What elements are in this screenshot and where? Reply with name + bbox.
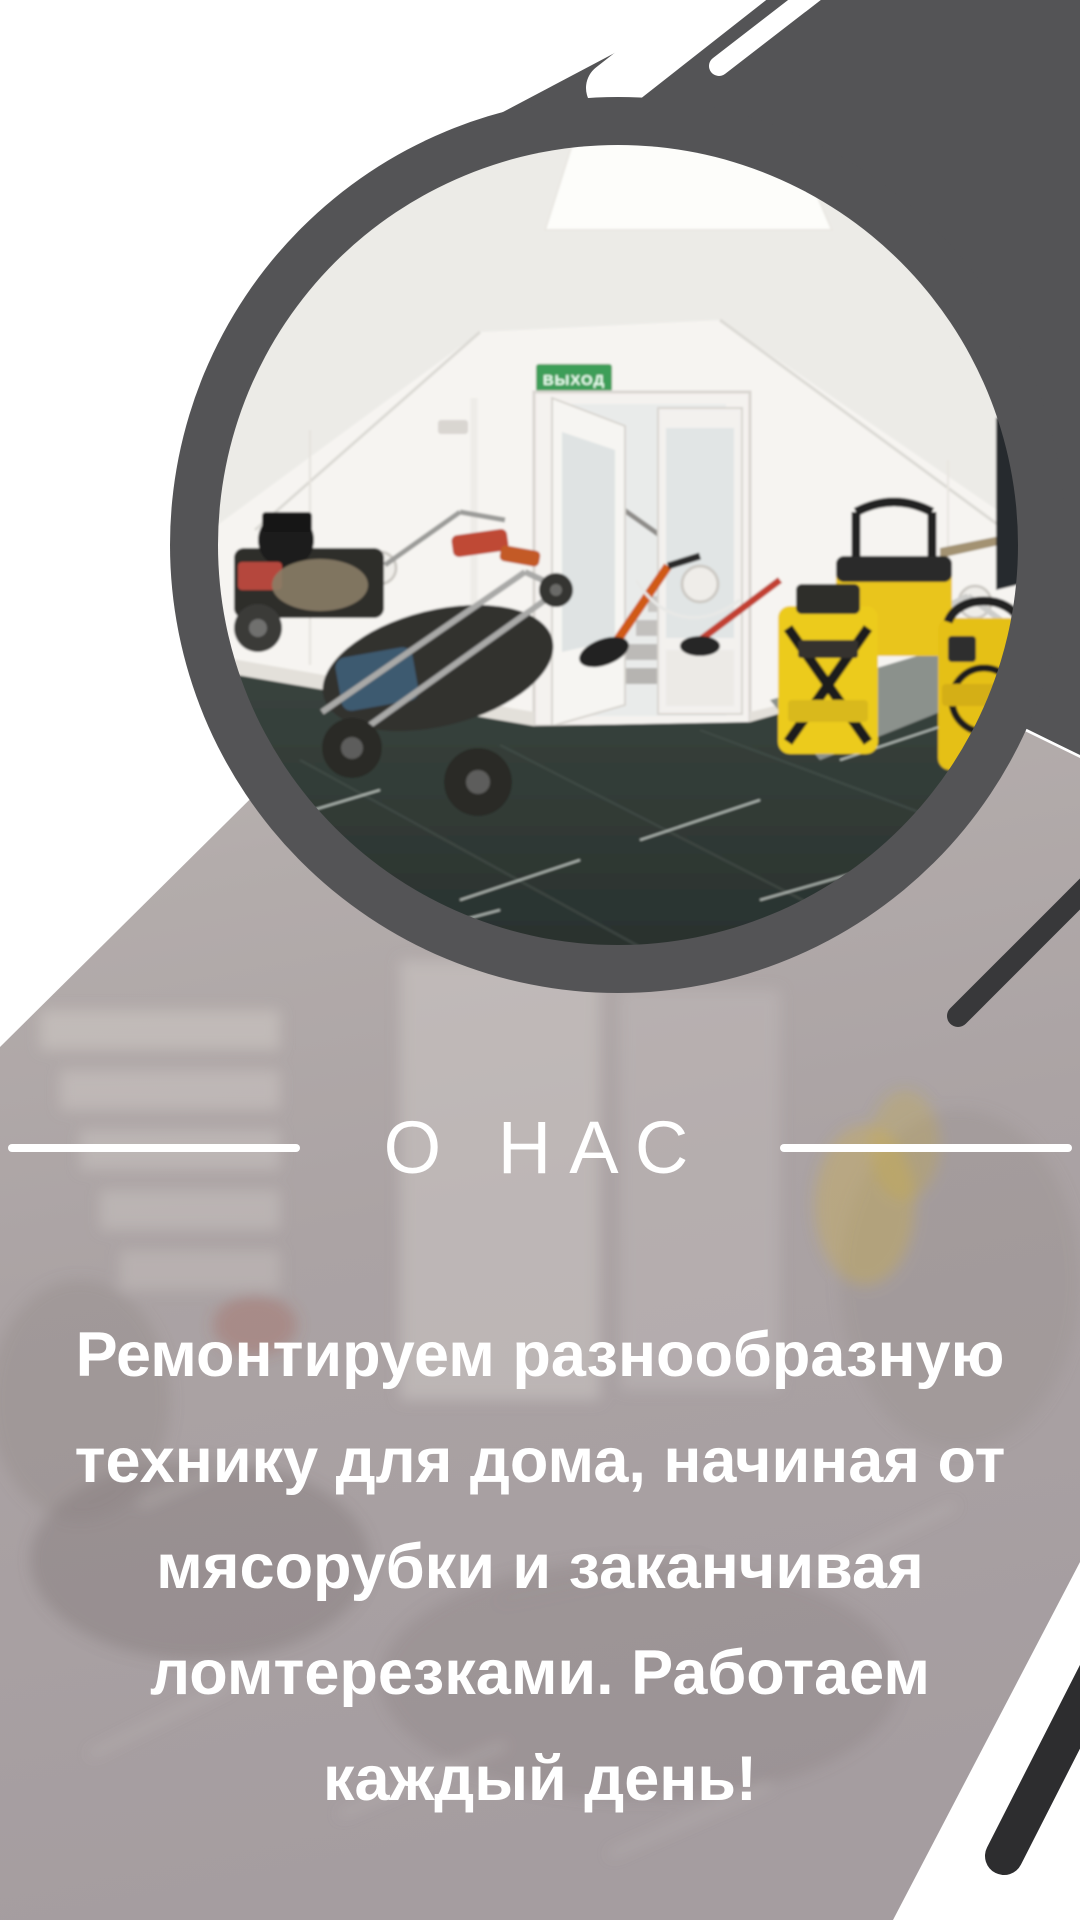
about-text-line: Ремонтируем разнообразную	[0, 1302, 1080, 1408]
about-text-line: мясорубки и заканчивая	[0, 1514, 1080, 1620]
about-text-line: ломтерезками. Работаем	[0, 1620, 1080, 1726]
title-divider-left	[8, 1144, 300, 1152]
about-description: Ремонтируем разнообразную технику для до…	[0, 1302, 1080, 1832]
title-divider-right	[780, 1144, 1072, 1152]
about-text-line: каждый день!	[0, 1726, 1080, 1832]
exit-sign-label: ВЫХОД	[543, 372, 605, 389]
about-text-line: технику для дома, начиная от	[0, 1408, 1080, 1514]
about-title-row: О НАС	[0, 1102, 1080, 1194]
about-title: О НАС	[374, 1111, 707, 1185]
